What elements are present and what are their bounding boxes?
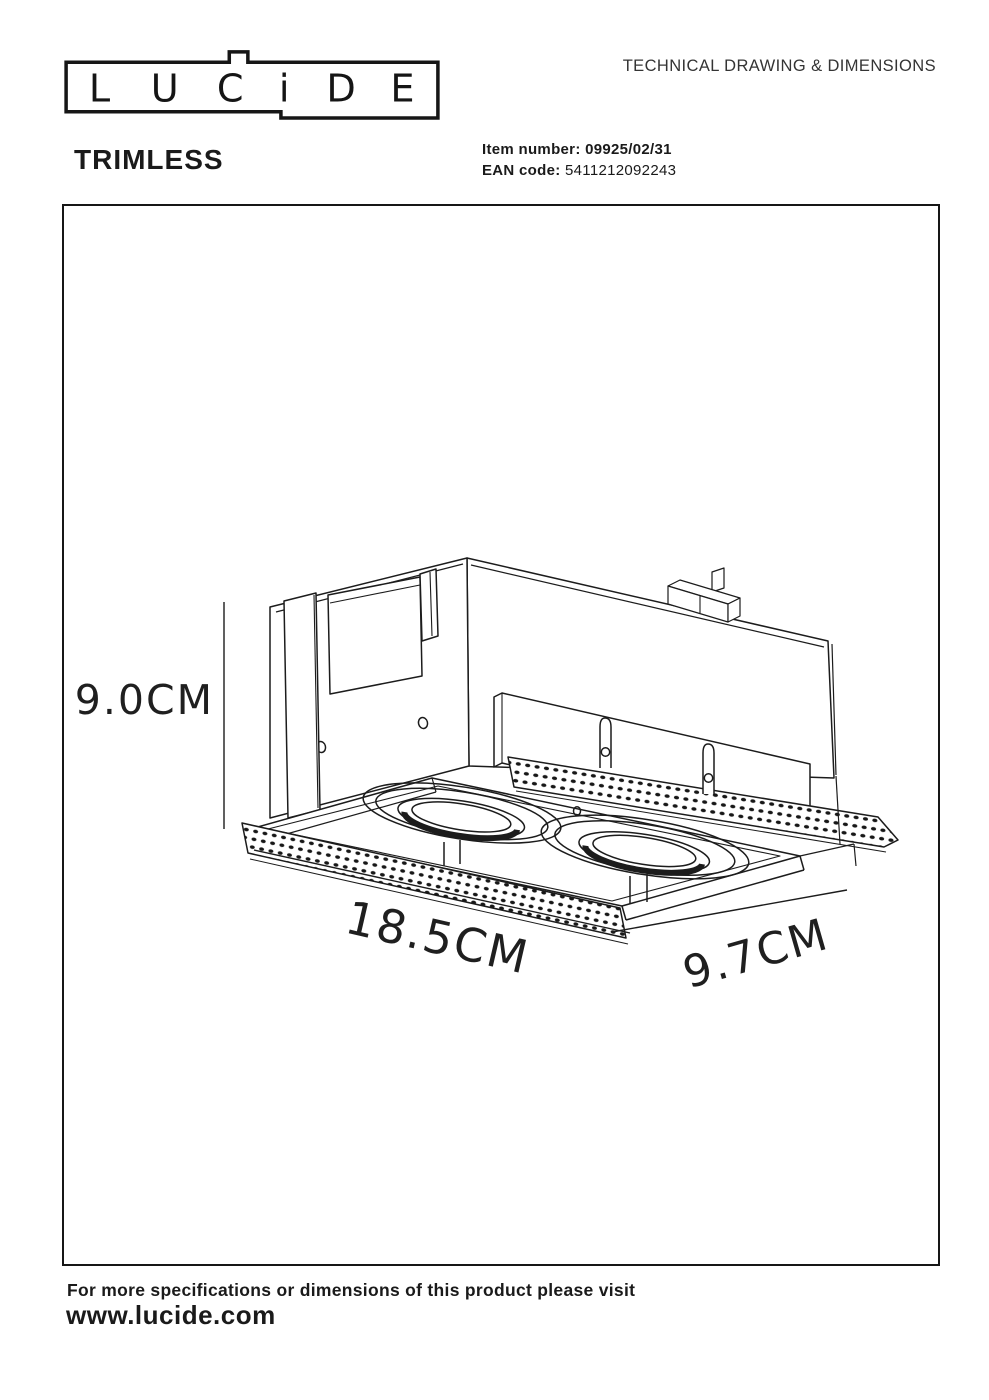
item-number-value: 09925/02/31 [585, 141, 672, 158]
dim-label-height: 9.0CM [75, 676, 214, 724]
fixture-illustration [224, 558, 898, 944]
logo-letter: i [279, 67, 290, 111]
lucide-logo-frame: L U C i D E [63, 46, 441, 128]
logo-letter: D [326, 67, 355, 111]
item-info: Item number: 09925/02/31 EAN code: 54112… [482, 139, 676, 181]
keyhole-hole [704, 774, 712, 782]
rim-band-corner [800, 856, 804, 870]
logo-letter: L [89, 67, 111, 111]
terminal-tab [712, 568, 724, 592]
logo-letter: E [390, 67, 414, 111]
keyhole-tab [600, 718, 611, 768]
ean-row: EAN code: 5411212092243 [482, 160, 676, 181]
logo-letter: C [217, 67, 244, 111]
spring-clip-tab [420, 569, 438, 641]
item-number-row: Item number: 09925/02/31 [482, 139, 676, 160]
lucide-logo: L U C i D E [63, 46, 441, 128]
keyhole-tab [703, 744, 714, 794]
footer-text: For more specifications or dimensions of… [67, 1280, 635, 1301]
dim-label-width: 9.7CM [678, 909, 835, 999]
technical-drawing: 9.0CM 18.5CM 9.7CM [64, 206, 938, 1264]
item-number-label: Item number: [482, 141, 581, 158]
product-name: TRIMLESS [74, 144, 224, 176]
keyhole-hole [601, 748, 609, 756]
drawing-frame: 9.0CM 18.5CM 9.7CM [62, 204, 940, 1266]
logo-border [66, 52, 438, 118]
page-title: TECHNICAL DRAWING & DIMENSIONS [623, 57, 936, 76]
rim-corner-edge [800, 844, 854, 856]
logo-letter: U [151, 67, 179, 111]
footer-website-link[interactable]: www.lucide.com [66, 1300, 276, 1331]
ean-label: EAN code: [482, 162, 561, 179]
ean-value: 5411212092243 [565, 162, 676, 179]
